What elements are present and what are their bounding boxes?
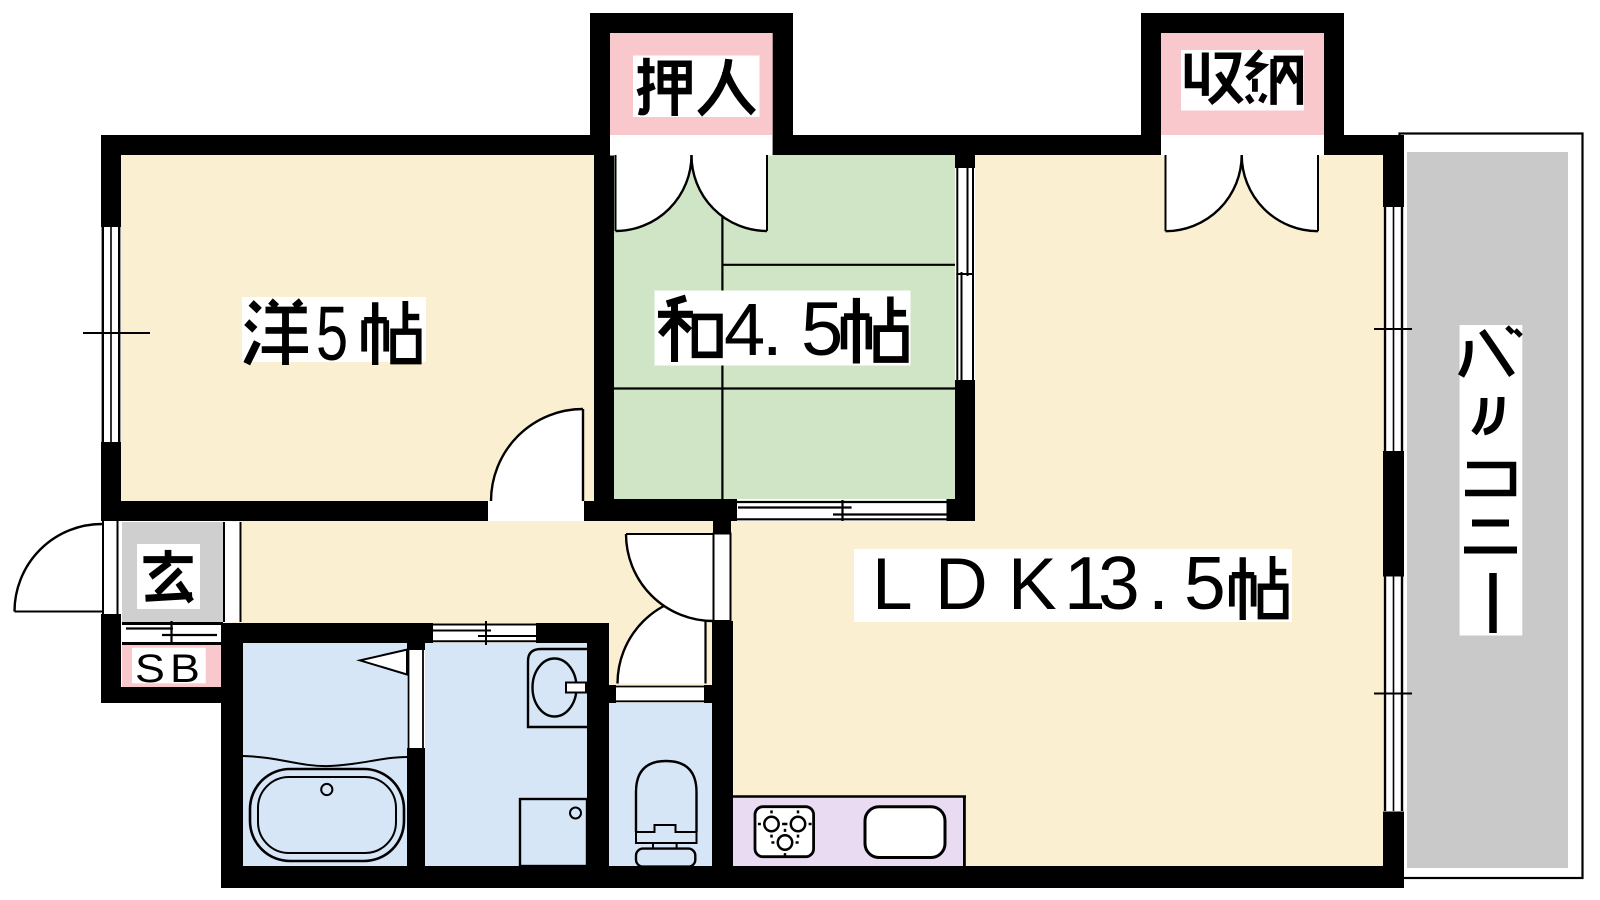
- svg-text:5: 5: [1184, 541, 1226, 625]
- svg-text:.: .: [762, 288, 783, 371]
- svg-text:5: 5: [316, 291, 348, 377]
- svg-text:S: S: [135, 646, 165, 690]
- svg-text:5: 5: [801, 287, 843, 372]
- svg-text:.: .: [1148, 541, 1169, 625]
- svg-text:3: 3: [1098, 541, 1140, 625]
- svg-text:K: K: [1008, 544, 1057, 625]
- svg-text:B: B: [170, 646, 200, 690]
- svg-text:L: L: [872, 544, 913, 625]
- svg-text:D: D: [935, 544, 988, 625]
- svg-text:4: 4: [724, 288, 765, 371]
